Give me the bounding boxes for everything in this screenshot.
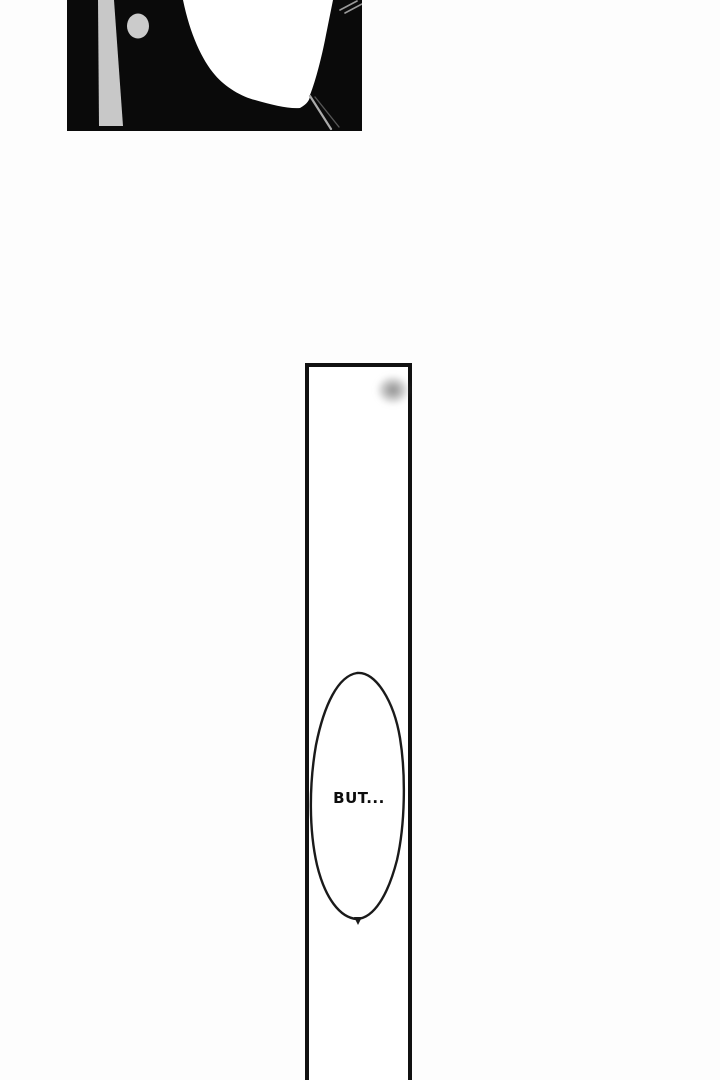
comic-page: BUT... — [0, 0, 720, 1080]
speech-bubble-text: BUT... — [300, 789, 418, 807]
panel-top-art — [67, 0, 362, 131]
art-gray-dot — [127, 14, 149, 39]
speech-bubble-tail — [354, 917, 362, 925]
